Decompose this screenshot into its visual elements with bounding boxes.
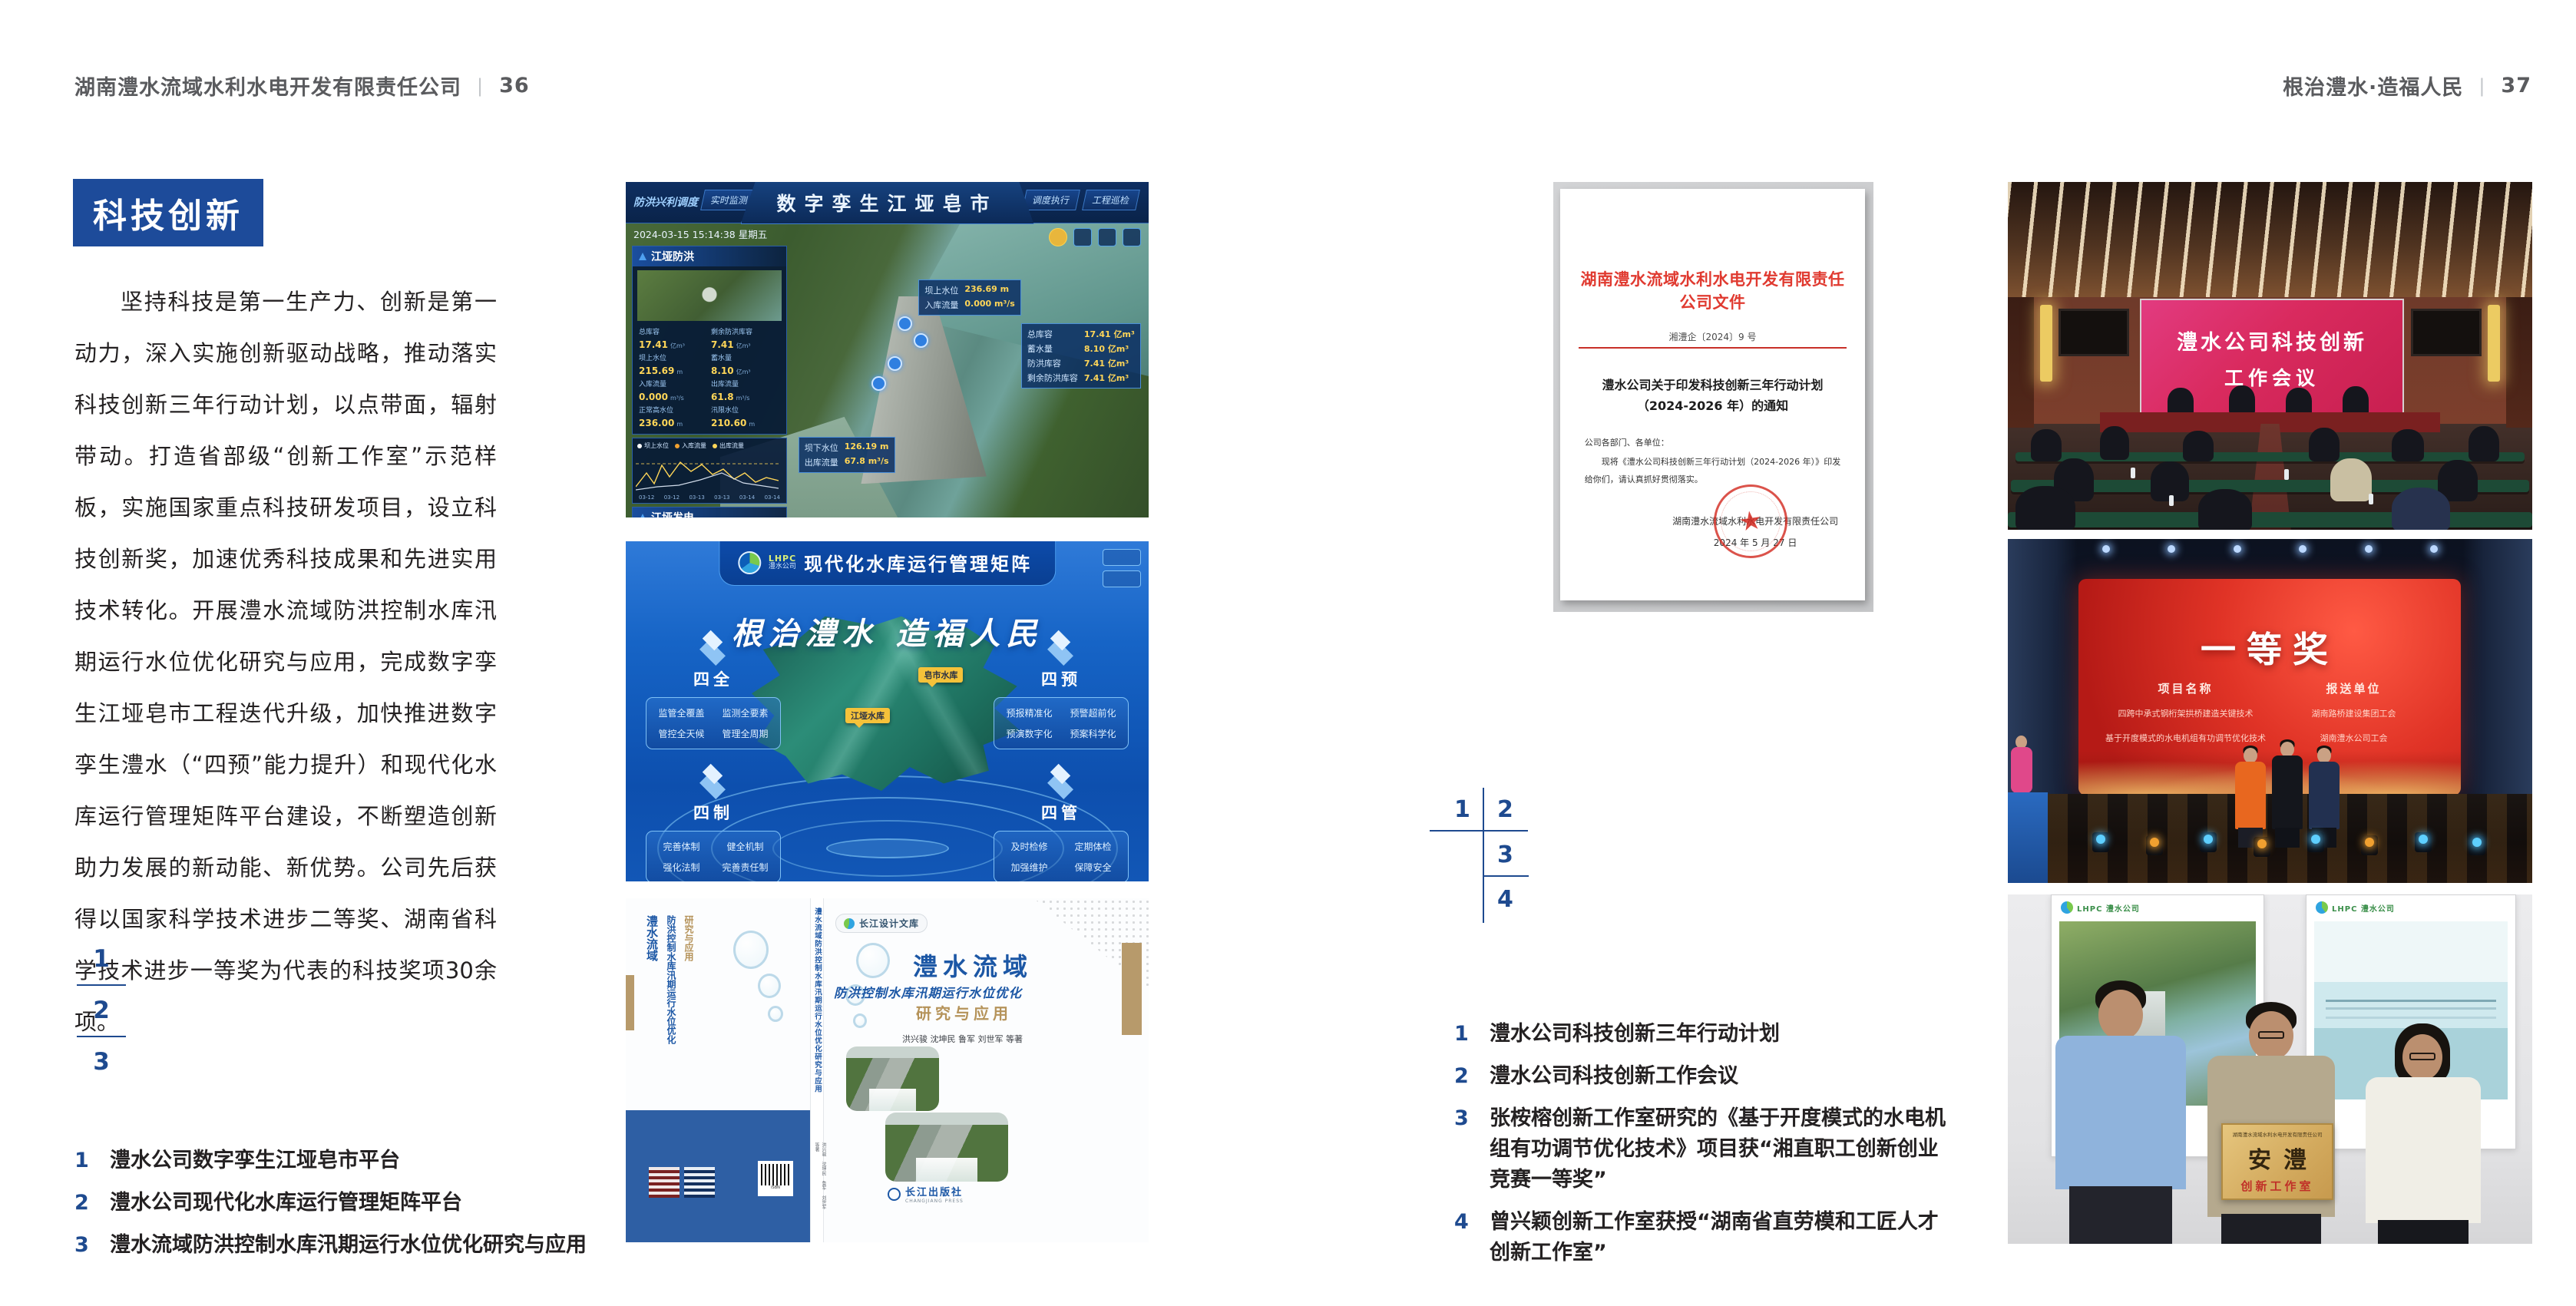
stat-cell: 坝上水位215.69m [639,352,708,377]
water-bottle [2284,469,2289,480]
divider-line [77,1036,126,1037]
publisher-logo-icon [888,1188,901,1201]
figure-number: 4 [1497,888,1513,911]
figure-matrix-platform: 皂市水库 江垭水库 LHPC 澧水公司 现代化水库运行管理矩阵 根治澧水 造福人… [626,541,1149,881]
page-header-right: 根治澧水·造福人民 | 37 [2283,71,2531,101]
mini-chart [636,451,779,491]
caption-text: 曾兴颖创新工作室获授“湖南省直劳模和工匠人才创新工作室” [1490,1207,1949,1268]
chart-legend: 坝上水位入库流量出库流量 [637,441,783,450]
caption-row: 3 张桉榕创新工作室研究的《基于开度模式的水电机组有功调节优化技术》项目获“湘直… [1454,1103,1949,1195]
stage-light [2415,832,2432,852]
header-divider: | [477,75,484,97]
presenter-suit [2272,742,2303,848]
person-left [2048,980,2194,1244]
bubble-decoration [768,1006,783,1022]
publisher-name: 长江出版社 [905,1187,963,1199]
caption-row: 2 澧水公司现代化水库运行管理矩阵平台 [74,1188,612,1218]
document-salutation: 公司各部门、各单位： [1585,436,1669,448]
user-icon [1049,228,1067,246]
flood-stats: 总库容17.41亿m³ 剩余防洪库容7.41亿m³ 坝上水位215.69m 蓄水… [633,325,786,434]
plaque-subtitle: 创新工作室 [2240,1178,2313,1194]
publisher-logo-icon [844,918,855,929]
back-title-sub: 防洪控制水库汛期运行水位优化 [665,915,678,1046]
column-header: 报送单位 [2270,680,2438,696]
project-item: 四跨中承式钢桁架拱桥建造关键技术 [2101,707,2270,719]
divider-line [1430,830,1528,832]
stage-light [2200,832,2217,852]
module-item: 预案科学化 [1063,727,1123,740]
divider-line [1483,788,1484,923]
matrix-header: LHPC 澧水公司 现代化水库运行管理矩阵 [719,541,1056,586]
lhpc-logo-text: LHPC 澧水公司 [2332,902,2395,914]
module-items: 预报精准化预警超前化预演数字化预案科学化 [994,697,1129,749]
attendee [2469,426,2499,461]
module-title: 四预 [994,667,1129,690]
document-red-header: 湖南澧水流域水利水电开发有限责任公司文件 [1572,267,1853,313]
caption-list-right: 1 澧水公司科技创新三年行动计划 2 澧水公司科技创新工作会议 3 张桉榕创新工… [1454,1019,1949,1268]
x-tick: 03-12 [639,494,654,501]
module-title: 四全 [646,667,781,690]
marker-dot [888,356,902,371]
module-item: 定期体检 [1063,840,1123,853]
x-tick: 03-13 [714,494,729,501]
cover-photo-dam-2 [885,1113,1008,1182]
page-number: 36 [499,74,530,98]
stage-light [2254,837,2270,857]
module-items: 及时检修定期体检加强维护保障安全 [994,831,1129,881]
wall-lamp [2488,305,2500,382]
bubble-decoration [758,974,781,998]
caption-number: 2 [74,1188,91,1218]
caption-row: 4 曾兴颖创新工作室获授“湖南省直劳模和工匠人才创新工作室” [1454,1207,1949,1268]
stat-cell: 总库容17.41亿m³ [639,326,708,351]
map-marker: 江垭水库 [845,708,890,723]
document-number: 湘澧企〔2024〕9 号 [1560,330,1865,343]
back-title-main: 澧水流域 [644,915,660,1046]
mode-label: 防洪兴利调度 [633,194,698,210]
module-icon [694,632,732,663]
stat-cell: 出库流量61.8m³/s [711,379,780,403]
desk-row [2015,452,2525,461]
figure-number: 2 [1497,798,1513,822]
divider-line [77,984,126,986]
attendee [2309,428,2340,461]
attendee [2392,488,2450,530]
project-column: 项目名称 四跨中承式钢桁架拱桥建造关键技术 基于开度模式的水电机组有功调节优化技… [2101,680,2270,756]
back-cover-title: 澧水流域 防洪控制水库汛期运行水位优化 研究与应用 [644,915,696,1046]
section-title-badge: 科技创新 [73,179,263,246]
module-item: 保障安全 [1063,861,1123,874]
divider-line [1483,875,1529,877]
x-tick: 03-14 [765,494,780,501]
caption-text: 澧水流域防洪控制水库汛期运行水位优化研究与应用 [110,1230,587,1261]
dashboard-timestamp: 2024-03-15 15:14:38 星期五 [633,226,787,241]
toolbar-icons [1049,228,1141,246]
dashboard-tab: 工程巡检 [1082,190,1140,210]
screen-line-1: 澧水公司科技创新 [2177,326,2367,355]
module-siguan: 四管 及时检修定期体检加强维护保障安全 [994,765,1129,881]
stage-rig-lights [2008,545,2532,576]
x-tick: 03-12 [664,494,680,501]
awardee-orange [2235,748,2266,848]
host-podium [2008,792,2048,883]
attendee [2392,429,2424,461]
wall-column [2506,297,2532,428]
module-item: 监测全要素 [715,706,775,719]
cover-tan-bar [1122,943,1142,1035]
module-item: 完善体制 [651,840,712,853]
caption-text: 澧水公司现代化水库运行管理矩阵平台 [110,1188,462,1218]
panel-button [1103,570,1141,587]
storage-tag: 总库容17.41 亿m³蓄水量8.10 亿m³防洪库容7.41 亿m³剩余防洪库… [1021,323,1141,388]
caption-number: 3 [74,1230,91,1261]
chart-x-labels: 03-1203-1203-1303-1303-1403-14 [636,494,783,501]
photo-studio-plaque: LHPC 澧水公司 LHPC 澧水公司 [2008,894,2532,1244]
figure-number: 3 [1497,844,1513,867]
wall-tv [2058,309,2129,356]
module-items: 监管全覆盖监测全要素管控全天候管理全周期 [646,697,781,749]
locate-icon [1098,228,1116,246]
marker-dot [914,333,928,348]
caption-text: 澧水公司数字孪生江垭皂市平台 [110,1146,400,1176]
page-number: 37 [2501,74,2531,98]
figure-book-cover: 澧水流域 防洪控制水库汛期运行水位优化 研究与应用 ISBN 澧水流域防洪控制水… [626,898,1149,1242]
caption-text: 澧水公司科技创新工作会议 [1490,1061,1738,1092]
stat-cell: 蓄水量8.10亿m³ [711,352,780,377]
photo-innovation-meeting: 澧水公司科技创新 工作会议 [2008,182,2532,530]
document-title: 澧水公司关于印发科技创新三年行动计划 （2024-2026 年）的通知 [1579,375,1847,416]
bubble-decoration [853,1013,867,1028]
panel-button [1103,549,1141,566]
attendee [2330,458,2372,501]
company-logo-icon [738,551,761,574]
stage-light [2469,835,2485,855]
spine-authors: 洪兴骏 沈坤民 鲁军 刘世军 等著 [813,1142,827,1212]
stat-cell: 入库流量0.000m³/s [639,379,708,403]
lhpc-logo-icon [2316,901,2328,914]
figure-number: 2 [93,999,110,1023]
spine-title: 澧水流域防洪控制水库汛期运行水位优化研究与应用 [812,908,822,1138]
bubble-decoration [733,931,769,969]
module-item: 加强维护 [999,861,1060,874]
module-title: 四制 [646,801,781,824]
stage-light [2092,832,2109,852]
water-level-chart: 坝上水位入库流量出库流量 03-1203-1203-1303-1303-1403… [632,438,787,504]
marker-dot [898,316,912,331]
qr-code [649,1167,680,1198]
module-item: 预警超前化 [1063,706,1123,719]
figure-number: 1 [1454,798,1470,822]
module-icon [694,765,732,796]
wall-tv [2411,309,2482,356]
caption-row: 1 澧水公司数字孪生江垭皂市平台 [74,1146,612,1176]
wall-lamp [2040,305,2052,382]
studio-plaque: 湖南澧水流域水利水电开发有限责任公司 安澧 创新工作室 [2221,1123,2333,1200]
book-title-sub: 防洪控制水库汛期运行水位优化 [834,983,1022,1001]
caption-number: 1 [74,1146,91,1176]
stat-cell: 剩余防洪库容7.41亿m³ [711,326,780,351]
module-icon [1042,632,1080,663]
legend-item: 出库流量 [713,441,744,450]
unit-item: 湖南路桥建设集团工会 [2270,707,2438,719]
wall-column [2008,297,2034,428]
map-marker: 皂市水库 [918,667,963,683]
official-seal [1709,480,1792,563]
x-tick: 03-14 [739,494,755,501]
figure-digital-twin-platform: 防洪兴利调度 实时监测洪水预报防洪预警 暴雨预测预案生成调度执行工程巡检 数字孪… [626,182,1149,517]
book-spine: 澧水流域防洪控制水库汛期运行水位优化研究与应用 洪兴骏 沈坤民 鲁军 刘世军 等… [810,898,824,1242]
module-sizhi: 四制 完善体制健全机制强化法制完善责任制 [646,765,781,881]
meeting-ceiling [2008,182,2532,297]
caption-number: 4 [1454,1207,1471,1268]
stat-cell: 汛限水位210.60m [711,405,780,429]
caption-number: 1 [1454,1019,1471,1050]
body-paragraph: 坚持科技是第一生产力、创新是第一动力，深入实施创新驱动战略，推动落实科技创新三年… [74,276,497,1048]
plaque-name: 安澧 [2236,1141,2319,1175]
dashboard-tab: 调度执行 [1022,190,1080,210]
module-items: 完善体制健全机制强化法制完善责任制 [646,831,781,881]
water-bottle [2169,495,2174,506]
bubble-decoration [856,943,890,978]
figure-number: 1 [93,947,110,971]
header-divider: | [2478,75,2485,97]
flood-panel: 江垭防洪 总库容17.41亿m³ 剩余防洪库容7.41亿m³ 坝上水位215.6… [632,246,787,435]
power-panel: 江垭发电 年发电计划6.3000亿度 年累计发电量3.2903亿度 月累计发电量… [632,507,787,517]
stage-light [2307,832,2324,852]
company-logo-text: LHPC 澧水公司 [769,554,796,571]
led-screen: 一等奖 项目名称 四跨中承式钢桁架拱桥建造关键技术 基于开度模式的水电机组有功调… [2078,579,2461,795]
module-item: 管理全周期 [715,727,775,740]
caption-list-left: 1 澧水公司数字孪生江垭皂市平台 2 澧水公司现代化水库运行管理矩阵平台 3 澧… [74,1146,612,1261]
report-spread: 湖南澧水流域水利水电开发有限责任公司 | 36 根治澧水·造福人民 | 37 科… [0,0,2576,1306]
module-item: 管控全天候 [651,727,712,740]
caption-number: 3 [1454,1103,1471,1195]
figure-number: 3 [93,1050,110,1074]
slogan-text: 根治澧水·造福人民 [2283,71,2463,101]
layers-icon [1073,228,1092,246]
panel-speaker [2229,385,2255,416]
figure-index-left: 1 2 3 [77,944,126,1077]
settings-icon [1123,228,1141,246]
attendee [2015,486,2075,530]
book-title-tail: 研究与应用 [916,1001,1012,1023]
water-bottle [2131,468,2135,478]
stat-cell: 正常高水位236.00m [639,405,708,429]
award-title: 一等奖 [2078,622,2461,673]
series-badge: 长江设计文库 [835,914,928,933]
project-item: 基于开度模式的水电机组有功调节优化技术 [2101,732,2270,744]
module-icon [1042,765,1080,796]
module-item: 及时检修 [999,840,1060,853]
back-cover-tab [626,975,634,1030]
page-header-left: 湖南澧水流域水利水电开发有限责任公司 | 36 [74,71,530,101]
caption-row: 2 澧水公司科技创新工作会议 [1454,1061,1949,1092]
downstream-tag: 坝下水位126.19 m出库流量67.8 m³/s [799,437,895,473]
caption-number: 2 [1454,1061,1471,1092]
caption-text: 澧水公司科技创新三年行动计划 [1490,1019,1780,1050]
caption-row: 1 澧水公司科技创新三年行动计划 [1454,1019,1949,1050]
company-name: 湖南澧水流域水利水电开发有限责任公司 [74,71,461,101]
publisher-name-en: CHANGJIANG PRESS [905,1199,964,1204]
attendee [2183,431,2214,461]
legend-item: 坝上水位 [637,441,669,450]
matrix-title: 现代化水库运行管理矩阵 [804,549,1032,576]
dam-thumbnail [637,270,782,321]
barcode: ISBN [758,1161,793,1196]
module-item: 预演数字化 [999,727,1060,740]
panel-title: 江垭防洪 [633,246,786,266]
dashboard-title: 数字孪生江垭皂市 [740,182,1033,224]
module-item: 监管全覆盖 [651,706,712,719]
module-siyu: 四预 预报精准化预警超前化预演数字化预案科学化 [994,632,1129,749]
module-item: 完善责任制 [715,861,775,874]
figure-official-document: 湖南澧水流域水利水电开发有限责任公司文件 湘澧企〔2024〕9 号 澧水公司关于… [1553,182,1873,612]
panel-title: 江垭发电 [633,508,786,517]
caption-row: 3 澧水流域防洪控制水库汛期运行水位优化研究与应用 [74,1230,612,1261]
module-item: 强化法制 [651,861,712,874]
qr-code [684,1167,715,1198]
back-title-tail: 研究与应用 [683,915,696,1046]
stage-light [2361,835,2378,855]
attendee [2198,489,2252,530]
document-red-rule [1579,347,1847,349]
caption-text: 张桉榕创新工作室研究的《基于开度模式的水电机组有功调节优化技术》项目获“湘直职工… [1490,1103,1949,1195]
cover-photo-dam [846,1046,939,1111]
attendee [2031,429,2062,461]
upstream-tag: 坝上水位236.69 m入库流量0.000 m³/s [918,279,1020,316]
attendee [2100,426,2129,460]
legend-item: 入库流量 [675,441,706,450]
lhpc-logo-text: LHPC 澧水公司 [2077,902,2140,914]
module-item: 健全机制 [715,840,775,853]
publisher-mark: 长江出版社 CHANGJIANG PRESS [888,1184,964,1204]
document-body: 现将《澧水公司科技创新三年行动计划（2024-2026 年）》印发给你们，请认真… [1585,453,1840,488]
series-badge-text: 长江设计文库 [859,917,919,930]
plaque-header: 湖南澧水流域水利水电开发有限责任公司 [2233,1130,2323,1138]
x-tick: 03-13 [689,494,704,501]
module-siquan: 四全 监管全覆盖监测全要素管控全天候管理全周期 [646,632,781,749]
lhpc-logo-icon [2061,901,2073,914]
book-title-main: 澧水流域 [913,947,1033,983]
document-page: 湖南澧水流域水利水电开发有限责任公司文件 湘澧企〔2024〕9 号 澧水公司关于… [1560,189,1865,600]
book-authors: 洪兴骏 沈坤民 鲁军 刘世军 等著 [902,1033,1023,1045]
photo-award-stage: 一等奖 项目名称 四跨中承式钢桁架拱桥建造关键技术 基于开度模式的水电机组有功调… [2008,539,2532,883]
desk-row [2008,512,2532,527]
module-title: 四管 [994,801,1129,824]
person-right [2355,1023,2493,1244]
module-item: 预报精准化 [999,706,1060,719]
water-bottle [2369,494,2373,504]
column-header: 项目名称 [2101,680,2270,696]
stage-light [2146,835,2163,855]
